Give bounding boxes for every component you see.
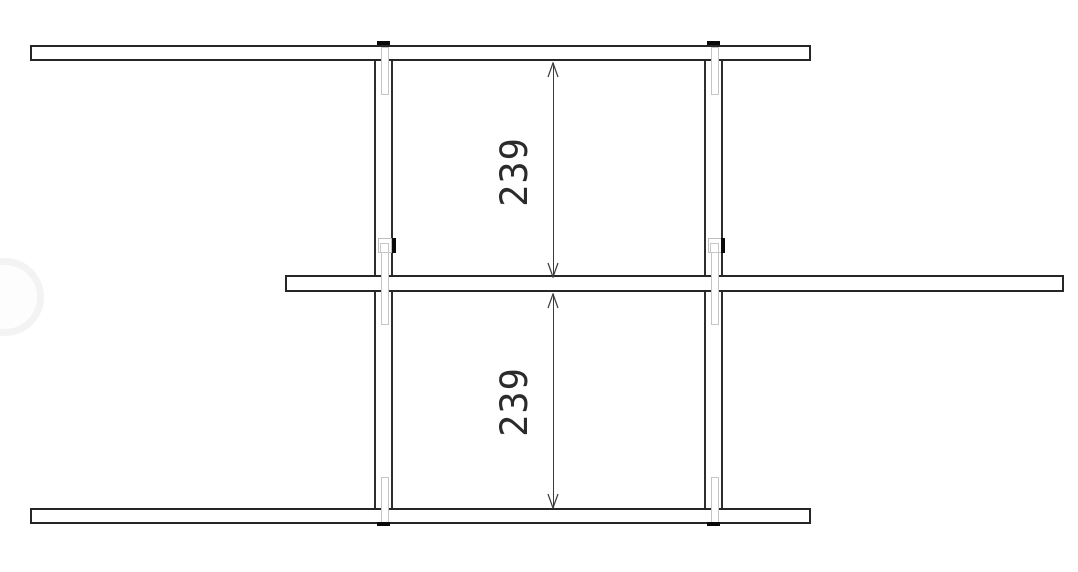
bottom-left-fastener-tick — [377, 522, 390, 526]
upper-dimension-arrow-down-icon — [547, 262, 559, 278]
middle-right-dowel — [711, 252, 719, 325]
lower-dimension-arrow-down-icon — [547, 493, 559, 509]
middle-shelf — [285, 275, 1064, 292]
top-left-dowel — [381, 47, 389, 95]
upper-dimension-label: 239 — [495, 122, 535, 222]
upper-dimension-line — [553, 63, 554, 277]
cad-drawing-canvas: 239 239 — [0, 0, 1078, 572]
lower-dimension-label: 239 — [495, 352, 535, 452]
top-right-dowel — [711, 47, 719, 95]
middle-right-fastener-tick — [721, 238, 725, 253]
middle-left-dowel — [381, 252, 389, 325]
bottom-shelf — [30, 508, 811, 524]
top-shelf — [30, 45, 811, 61]
watermark-circle — [0, 258, 44, 336]
middle-left-fastener-tick — [392, 238, 396, 253]
lower-dimension-arrow-up-icon — [547, 293, 559, 309]
top-right-fastener-tick — [707, 41, 720, 45]
lower-dimension-line — [553, 294, 554, 508]
upper-dimension-arrow-up-icon — [547, 62, 559, 78]
top-left-fastener-tick — [377, 41, 390, 45]
bottom-right-fastener-tick — [707, 522, 720, 526]
bottom-left-dowel — [381, 477, 389, 523]
bottom-right-dowel — [711, 477, 719, 523]
